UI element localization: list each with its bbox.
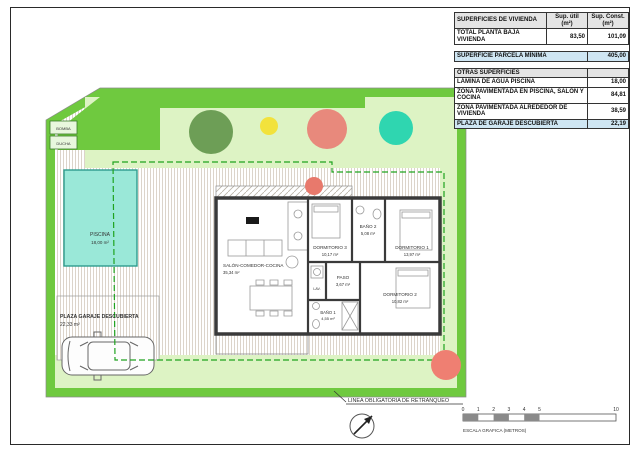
tree-dark-green xyxy=(189,110,233,154)
table-row: SUPERFICIES DE VIVIENDA Sup. útil (m²) S… xyxy=(455,13,628,28)
row-label: SUPERFICIE PARCELA MÍNIMA xyxy=(455,52,587,61)
room-area-bath1: 4,55 m² xyxy=(321,316,335,321)
vivienda-table-title: SUPERFICIES DE VIVIENDA xyxy=(455,13,546,28)
room-area-dorm1: 13,97 m² xyxy=(404,252,421,257)
garage-area: 22,33 m² xyxy=(60,322,80,328)
table-row: SUPERFICIE PARCELA MÍNIMA 405,00 xyxy=(455,52,628,61)
area-tables: SUPERFICIES DE VIVIENDA Sup. útil (m²) S… xyxy=(454,12,629,129)
empty-cell xyxy=(587,69,628,78)
room-label-salon: SALÓN-COMEDOR-COCINA xyxy=(223,262,284,268)
row-value: 22,19 xyxy=(587,120,628,129)
garage-label: PLAZA GARAJE DESCUBIERTA xyxy=(60,314,139,320)
scale-tick-3: 3 xyxy=(508,407,511,413)
equipment-label-bomba: BOMBA xyxy=(56,126,71,131)
row-label: ZONA PAVIMENTADA EN PISCINA, SALÓN Y COC… xyxy=(455,88,587,103)
pergola-strip xyxy=(216,186,352,198)
bush-pink-small xyxy=(305,177,323,195)
room-label-lav: LAV. xyxy=(313,287,320,291)
row-value: 405,00 xyxy=(587,52,628,61)
bush-yellow xyxy=(260,117,278,135)
row-value: 84,81 xyxy=(587,88,628,103)
table-row: ZONA PAVIMENTADA ALREDEDOR DE VIVIENDA 3… xyxy=(455,103,628,119)
room-area-dorm2: 10,82 m² xyxy=(392,299,409,304)
scale-bar: 0 1 2 3 4 5 10 ESCALA GRAFICA (METROS) xyxy=(462,407,619,433)
scale-seg-0-1 xyxy=(463,414,478,421)
car-body xyxy=(62,337,154,375)
room-label-paso: PASO xyxy=(337,275,350,280)
table-row: OTRAS SUPERFICIES xyxy=(455,69,628,78)
room-label-bath2: BAÑO 2 xyxy=(360,223,377,229)
vivienda-table: SUPERFICIES DE VIVIENDA Sup. útil (m²) S… xyxy=(454,12,629,45)
scale-bar-label: ESCALA GRAFICA (METROS) xyxy=(463,428,527,433)
tree-salmon-bottom xyxy=(431,350,461,380)
room-label-bath1: BAÑO 1 xyxy=(320,310,336,315)
row-value-util: 83,50 xyxy=(546,29,587,44)
otras-superficies-table: OTRAS SUPERFICIES LÁMINA DE AGUA PISCINA… xyxy=(454,68,629,130)
otras-table-title: OTRAS SUPERFICIES xyxy=(455,69,587,78)
pool-label: PISCINA xyxy=(90,232,111,238)
table-row: TOTAL PLANTA BAJA VIVIENDA 83,50 101,09 xyxy=(455,28,628,44)
drawing-page: SALÓN-COMEDOR-COCINA 35,34 m² DORMITORIO… xyxy=(0,0,640,452)
north-arrow xyxy=(350,414,374,438)
col-header-sup-const: Sup. Const. (m²) xyxy=(587,13,628,28)
scale-tick-4: 4 xyxy=(523,407,526,413)
table-row: LÁMINA DE AGUA PISCINA 18,00 xyxy=(455,77,628,87)
room-area-salon: 35,34 m² xyxy=(223,270,240,275)
setback-label: LINEA OBLIGATORIA DE RETRANQUEO xyxy=(348,398,449,404)
room-label-dorm2: DORMITORIO 2 xyxy=(383,292,417,297)
room-label-dorm1: DORMITORIO 1 xyxy=(395,245,429,250)
scale-tick-0: 0 xyxy=(462,407,465,413)
row-value-const: 101,09 xyxy=(587,29,628,44)
pool xyxy=(64,170,137,266)
room-area-dorm3: 10,17 m² xyxy=(322,252,339,257)
row-value: 38,59 xyxy=(587,104,628,119)
room-label-dorm3: DORMITORIO 3 xyxy=(313,245,347,250)
row-label: LÁMINA DE AGUA PISCINA xyxy=(455,78,587,87)
parcela-table: SUPERFICIE PARCELA MÍNIMA 405,00 xyxy=(454,51,629,62)
row-label: TOTAL PLANTA BAJA VIVIENDA xyxy=(455,29,546,44)
equipment-label-ducha: DUCHA xyxy=(56,141,71,146)
scale-seg-4-5 xyxy=(524,414,539,421)
tv-unit xyxy=(246,217,259,224)
tree-turquoise xyxy=(379,111,413,145)
room-area-paso: 3,67 m² xyxy=(336,282,351,287)
car xyxy=(62,332,154,380)
scale-tick-10: 10 xyxy=(613,407,619,413)
col-header-sup-util: Sup. útil (m²) xyxy=(546,13,587,28)
tree-salmon xyxy=(307,109,347,149)
row-label: PLAZA DE GARAJE DESCUBIERTA xyxy=(455,120,587,129)
scale-seg-2-3 xyxy=(494,414,509,421)
room-area-bath2: 5,08 m² xyxy=(361,231,376,236)
house: SALÓN-COMEDOR-COCINA 35,34 m² DORMITORIO… xyxy=(216,198,440,334)
garden-right-strip xyxy=(440,97,457,388)
table-row: ZONA PAVIMENTADA EN PISCINA, SALÓN Y COC… xyxy=(455,87,628,103)
scale-tick-1: 1 xyxy=(477,407,480,413)
scale-tick-2: 2 xyxy=(492,407,495,413)
scale-tick-5: 5 xyxy=(538,407,541,413)
row-value: 18,00 xyxy=(587,78,628,87)
table-row: PLAZA DE GARAJE DESCUBIERTA 22,19 xyxy=(455,119,628,129)
pool-area: 18,00 m² xyxy=(91,240,109,245)
row-label: ZONA PAVIMENTADA ALREDEDOR DE VIVIENDA xyxy=(455,104,587,119)
